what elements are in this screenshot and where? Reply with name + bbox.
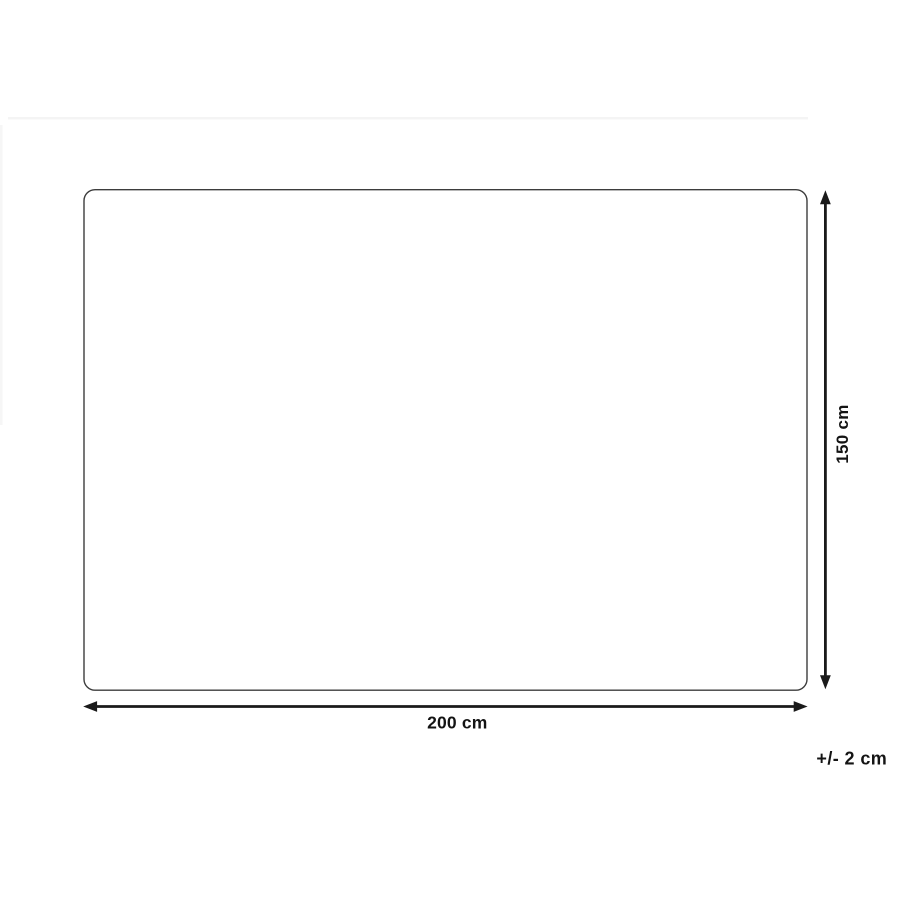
svg-text:150 cm: 150 cm xyxy=(833,404,852,463)
svg-text:+/- 2 cm: +/- 2 cm xyxy=(816,748,887,768)
svg-text:200 cm: 200 cm xyxy=(427,712,487,732)
